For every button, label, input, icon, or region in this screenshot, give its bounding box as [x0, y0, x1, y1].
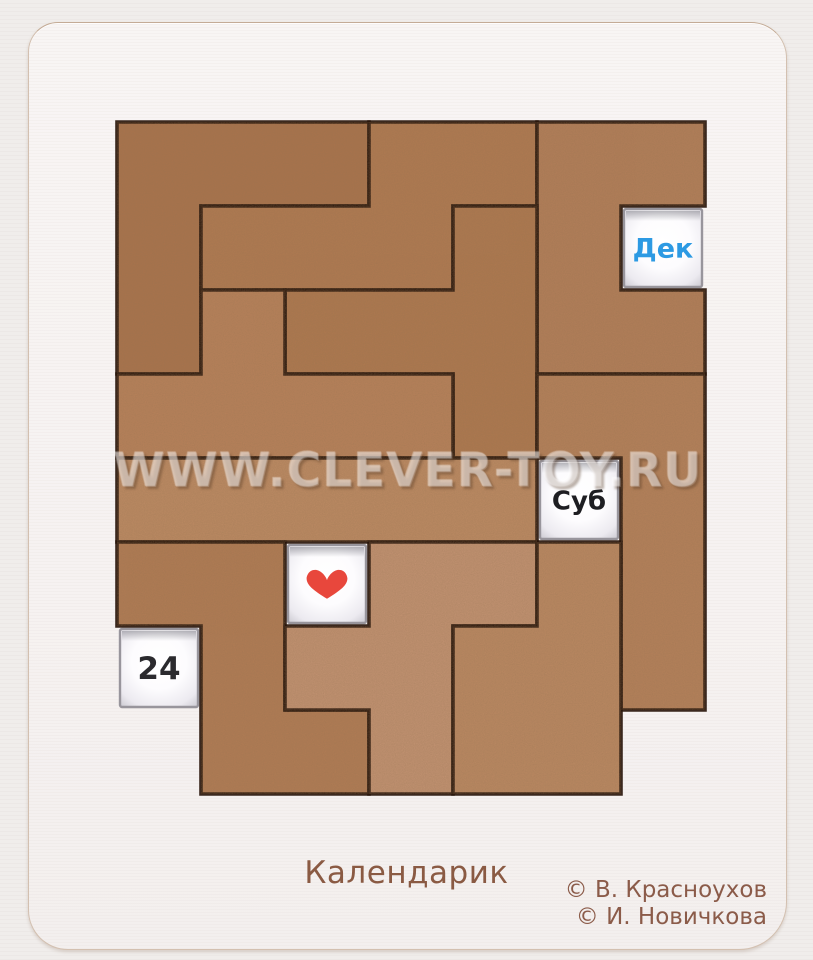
window-label-date: 24	[137, 651, 180, 687]
credits: © В. Красноухов © И. Новичкова	[565, 877, 767, 931]
window-label-weekday: Суб	[552, 486, 606, 516]
window-label-month: Дек	[633, 234, 694, 265]
credit-line-1: © В. Красноухов	[565, 877, 767, 904]
wood-texture	[112, 117, 710, 799]
window-date: 24	[120, 629, 198, 707]
window-month: Дек	[624, 209, 702, 287]
credit-line-2: © И. Новичкова	[565, 904, 767, 931]
puzzle-assembly: ДекСуб24	[0, 0, 813, 960]
window-weekday: Суб	[540, 461, 618, 539]
window-heart	[288, 545, 366, 623]
product-photo-stage: ДекСуб24 WWW.CLEVER-TOY.RU Календарик © …	[0, 0, 813, 960]
